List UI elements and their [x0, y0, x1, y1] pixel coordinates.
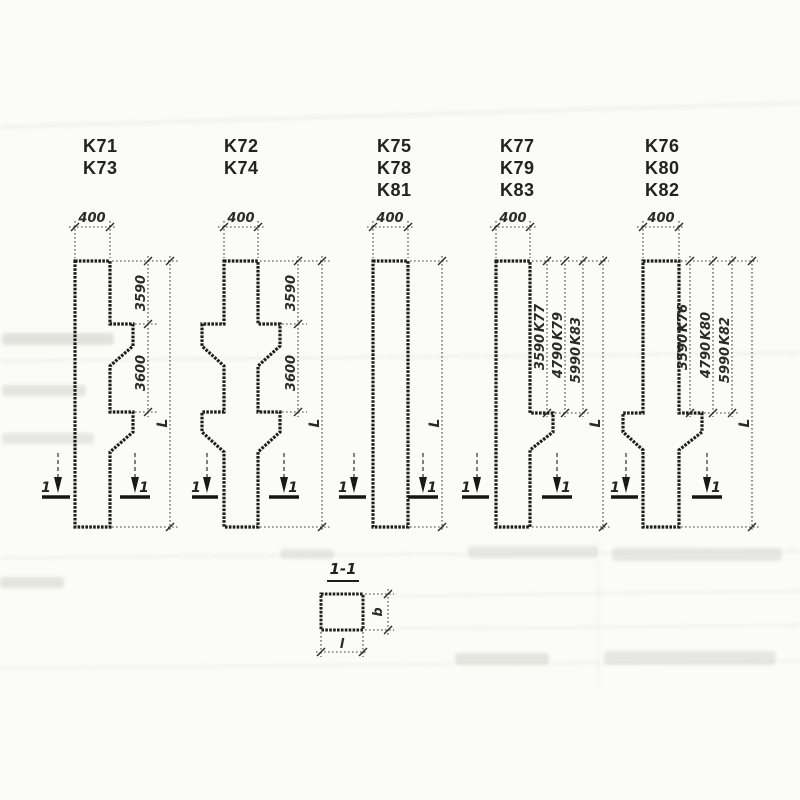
scan-artifact-line [380, 625, 800, 629]
section-arrow-icon [703, 477, 711, 493]
section-number-label: 1 [288, 480, 298, 496]
section-arrow-icon [473, 477, 481, 493]
section-number-label: 1 [711, 480, 721, 496]
bleed-through-blob [455, 653, 549, 665]
section-arrow-icon [131, 477, 139, 493]
section-cut-markers: 1 1 [461, 453, 572, 497]
variant-label: K73 [83, 158, 118, 178]
variant-dim-value: 3590 [676, 334, 691, 370]
depth-dim-label: b [371, 607, 386, 616]
segment-dim-label: 3600 [284, 355, 299, 391]
scan-artifact-line [380, 591, 800, 596]
variant-label: K83 [500, 180, 535, 200]
bleed-through-blob [604, 651, 776, 665]
section-number-label: 1 [610, 480, 620, 496]
bleed-through-blob [2, 433, 94, 444]
width-dimension: 400 [637, 211, 685, 258]
variant-label: K80 [645, 158, 680, 178]
section-number-label: 1 [427, 480, 437, 496]
variant-dim-code: K82 [718, 317, 733, 345]
width-dimension: 400 [69, 211, 116, 258]
column-figure-k76-k80-k82: K76 K80 K82 400 3590 K76 4790 K80 [610, 136, 760, 532]
bleed-through-blob [468, 546, 598, 558]
section-number-label: 1 [338, 480, 348, 496]
section-cut-markers: 1 1 [41, 453, 150, 497]
variant-dim-value: 5990 [718, 347, 733, 383]
section-cut-markers: 1 1 [338, 453, 438, 497]
width-dim-label: 400 [498, 211, 526, 226]
variant-dim-code: K77 [533, 303, 548, 332]
section-number-label: 1 [41, 480, 51, 496]
variant-dim-value: 4790 [699, 342, 714, 379]
bleed-through-blob [612, 548, 782, 561]
variant-label: K71 [83, 136, 118, 156]
variant-dim-value: 3590 [533, 334, 548, 370]
variant-label: K81 [377, 180, 412, 200]
bleed-through-blob [2, 333, 114, 345]
section-1-1-detail: 1-1 b l [316, 560, 394, 657]
variant-dim-code: K76 [676, 304, 691, 332]
cross-section-outline [321, 594, 363, 630]
width-dimension: l [316, 632, 368, 657]
bleed-through-blob [280, 549, 334, 559]
width-dim-label: 400 [375, 211, 403, 226]
variant-label: K82 [645, 180, 680, 200]
section-arrow-icon [350, 477, 358, 493]
section-number-label: 1 [461, 480, 471, 496]
column-figure-k72-k74: K72 K74 400 3590 3600 L [191, 136, 332, 532]
section-arrow-icon [203, 477, 211, 493]
length-dim-label: L [155, 419, 171, 428]
bleed-through-blob [0, 577, 64, 588]
column-outline [373, 261, 408, 527]
section-arrow-icon [280, 477, 288, 493]
column-outline [496, 261, 553, 527]
column-figure-k75-k78-k81: K75 K78 K81 400 L 1 1 [338, 136, 450, 532]
dim-tick [561, 257, 569, 265]
variant-label: K79 [500, 158, 535, 178]
width-dim-label: l [340, 637, 345, 652]
section-detail-title: 1-1 [329, 560, 356, 578]
section-cut-markers: 1 1 [191, 453, 299, 497]
variant-dim-value: 4790 [551, 342, 566, 379]
length-dim-label: L [737, 419, 753, 428]
column-outline [202, 261, 280, 527]
dim-tick [686, 257, 694, 265]
dim-tick [709, 409, 717, 417]
section-arrow-icon [419, 477, 427, 493]
scanned-drawing-page: K71 K73 400 3590 3600 L [0, 0, 800, 800]
width-dimension: 400 [218, 211, 264, 258]
scan-artifact-line [0, 103, 800, 127]
width-dim-label: 400 [226, 211, 254, 226]
section-number-label: 1 [561, 480, 571, 496]
variant-label: K75 [377, 136, 412, 156]
segment-dim-label: 3590 [284, 275, 299, 311]
length-dim-label: L [307, 419, 323, 428]
segment-dim-label: 3600 [134, 355, 149, 391]
variant-label: K77 [500, 136, 535, 156]
width-dimension: 400 [490, 211, 536, 258]
section-arrow-icon [622, 477, 630, 493]
length-dim-label: L [588, 419, 604, 428]
width-dimension: 400 [367, 211, 414, 258]
variant-dim-code: K83 [569, 317, 584, 345]
section-number-label: 1 [139, 480, 149, 496]
segment-dim-label: 3590 [134, 275, 149, 311]
variant-dim-code: K79 [551, 312, 566, 340]
length-dim-label: L [427, 419, 443, 428]
vertical-dimensions: 3590 K77 4790 K79 5990 K83 L [532, 256, 611, 532]
variant-label: K78 [377, 158, 412, 178]
column-elevation-drawing: K71 K73 400 3590 3600 L [0, 0, 800, 800]
width-dim-label: 400 [646, 211, 674, 226]
column-figure-k77-k79-k83: K77 K79 K83 400 3590 K77 4790 K79 [461, 136, 611, 532]
section-number-label: 1 [191, 480, 201, 496]
variant-label: K76 [645, 136, 680, 156]
variant-dim-value: 5990 [569, 347, 584, 383]
width-dim-label: 400 [77, 211, 105, 226]
variant-label: K72 [224, 136, 259, 156]
variant-label: K74 [224, 158, 259, 178]
section-arrow-icon [553, 477, 561, 493]
section-cut-markers: 1 1 [610, 453, 722, 497]
section-arrow-icon [54, 477, 62, 493]
variant-dim-code: K80 [699, 312, 714, 340]
